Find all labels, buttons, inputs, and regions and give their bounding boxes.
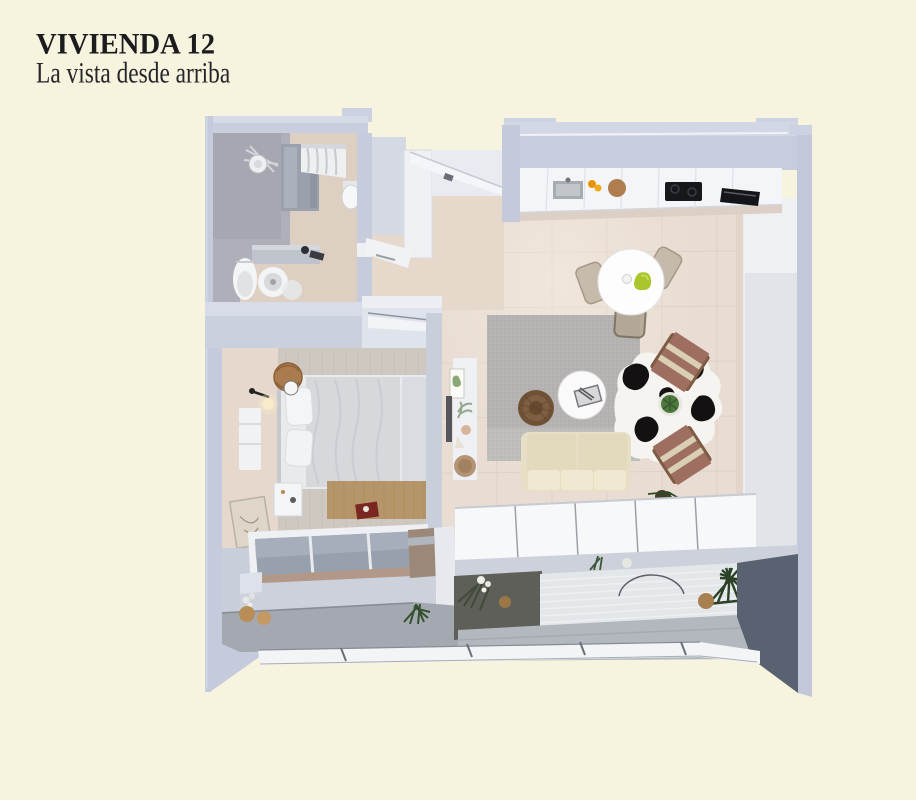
- svg-text:La vista desde arriba: La vista desde arriba: [36, 56, 230, 89]
